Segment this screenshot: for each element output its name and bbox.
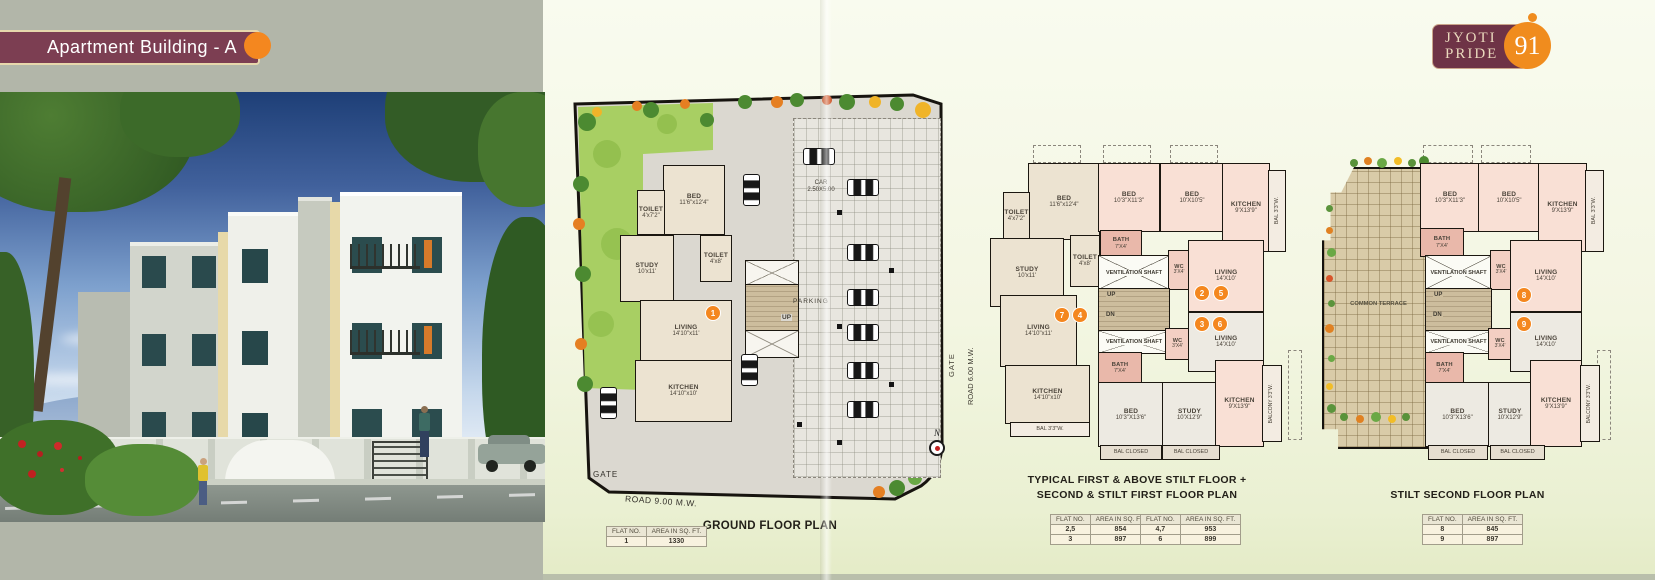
room-bed3: BED 10'X10'5" [1160, 163, 1224, 232]
area-cell: 953 [1180, 525, 1240, 535]
room-label: KITCHEN [1032, 388, 1062, 395]
column [889, 382, 894, 387]
room-label: BED [1502, 191, 1516, 198]
logo-number-circle: 91 [1504, 22, 1551, 69]
rose-bush [18, 440, 26, 448]
person-pants [420, 431, 429, 457]
balcony-box [1288, 350, 1302, 440]
window-box [1481, 145, 1531, 163]
door-accent [424, 326, 432, 354]
person [196, 458, 210, 510]
room-label: KITCHEN [1547, 201, 1577, 208]
north-letter: N [926, 428, 948, 438]
common-terrace: COMMON TERRACE [1322, 167, 1429, 449]
room-bal-closed: BAL CLOSED [1428, 445, 1488, 460]
plants-row [1340, 413, 1348, 421]
typical-plan-caption: TYPICAL FIRST & ABOVE STILT FLOOR + SECO… [1008, 473, 1266, 502]
ground-area-table: FLAT NO.AREA IN SQ. FT. 11330 [606, 526, 707, 547]
car-topview [600, 387, 617, 419]
gate-label: GATE [947, 317, 956, 377]
room-label: KITCHEN [668, 384, 698, 391]
room-label: KITCHEN [1224, 397, 1254, 404]
ventilation-shaft: VENTILATION SHAFT [1425, 255, 1492, 290]
car-topview [847, 289, 879, 306]
col-flat-no: FLAT NO. [1051, 515, 1091, 525]
building-recess [298, 197, 332, 471]
flat-no-cell: 4,7 [1141, 525, 1181, 535]
logo-word1: JYOTI [1445, 31, 1497, 47]
col-area: AREA IN SQ. FT. [1462, 515, 1522, 525]
room-label: LIVING [1215, 335, 1238, 342]
col-flat-no: FLAT NO. [1141, 515, 1181, 525]
ventilation-shaft: VENTILATION SHAFT [1098, 330, 1170, 354]
room-label: BED [1185, 191, 1199, 198]
room-dim: 10'3"X13'6" [1116, 415, 1147, 422]
room-label: LIVING [1215, 269, 1238, 276]
room-bed4: BED 10'3"X13'6" [1098, 382, 1164, 447]
room-wc1: WC 3'X4' [1490, 250, 1512, 290]
page-bottom-edge [543, 574, 1655, 580]
car-topview [847, 362, 879, 379]
room-bal2: BAL 3'3"W. [1010, 422, 1090, 437]
room-bath2: BATH 7'X4' [1098, 352, 1142, 384]
room-dim: 9'X13'9" [1545, 404, 1567, 411]
page-fold [820, 0, 832, 580]
room-label: BED [1057, 195, 1071, 202]
col-flat-no: FLAT NO. [1423, 515, 1463, 525]
room-label: KITCHEN [1541, 397, 1571, 404]
room-label: VENTILATION SHAFT [1104, 339, 1164, 345]
column [837, 210, 842, 215]
room-bath1: BATH 7'X4' [1100, 230, 1142, 257]
room-dim: 14'X10' [1536, 276, 1556, 283]
gate-label: GATE [593, 470, 618, 479]
compass-ring [929, 440, 945, 456]
caption-line1: TYPICAL FIRST & ABOVE STILT FLOOR + [1008, 473, 1266, 488]
room-dim: 7'X4' [1115, 244, 1127, 250]
brochure-page: Apartment Building - A [0, 0, 1655, 580]
room-dim: 7'X4' [1436, 243, 1448, 249]
column [837, 440, 842, 445]
building-pilaster [330, 202, 340, 464]
room-label: BAL CLOSED [1114, 449, 1148, 455]
room-dim: 3'X4' [1174, 270, 1185, 276]
column [837, 324, 842, 329]
ventilation-shaft: VENTILATION SHAFT [1425, 330, 1492, 354]
room-dim: 9'X13'9" [1235, 208, 1257, 215]
building-center-face [228, 212, 298, 471]
room-dim: 14'X10' [1216, 342, 1236, 349]
parked-car [478, 435, 545, 475]
flat-number-badge: 6 [1212, 316, 1228, 332]
room-dim: 10'3"X11'3" [1114, 198, 1144, 205]
room-label: TOILET [704, 252, 728, 259]
car-topview [847, 179, 879, 196]
door-accent [424, 240, 432, 268]
car-wheel [486, 460, 498, 472]
column [889, 268, 894, 273]
room-label: STUDY [1015, 266, 1038, 273]
car-wheel [524, 460, 536, 472]
room-bed4: BED 10'3"X13'6" [1425, 382, 1490, 447]
car-topview [847, 244, 879, 261]
person [418, 406, 432, 464]
banner-dot [244, 32, 271, 59]
dn-label: DN [1105, 312, 1116, 318]
flat-number-badge: 2 [1194, 285, 1210, 301]
plants-row [1350, 159, 1358, 167]
room-living1: LIVING 14'X10' [1188, 240, 1264, 312]
second-plan-caption: STILT SECOND FLOOR PLAN [1355, 489, 1580, 501]
room-bed2: BED 10'3"X11'3" [1098, 163, 1160, 232]
room-label: KITCHEN [1231, 201, 1261, 208]
room-wc1: WC 3'X4' [1168, 250, 1190, 290]
flat-no-cell: 3 [1051, 535, 1091, 545]
room-label: BAL CLOSED [1500, 449, 1534, 455]
room-dim: 4'x8' [1079, 261, 1091, 268]
flat-number-badge: 7 [1054, 307, 1070, 323]
building-left-face [130, 242, 220, 466]
room-label: BED [1122, 191, 1136, 198]
room-study2: STUDY 10'X12'9" [1162, 382, 1217, 447]
title-banner: Apartment Building - A [0, 30, 260, 65]
north-compass-icon: N [926, 428, 948, 466]
room-dim: 14'10"x11' [1025, 331, 1052, 338]
room-dim: 14'10"x10' [670, 391, 697, 398]
room-dim: 10'x11' [1018, 273, 1036, 280]
terrace-label: COMMON TERRACE [1336, 301, 1421, 307]
up-label: UP [1106, 292, 1116, 298]
room-study2: STUDY 10'X12'9" [1488, 382, 1532, 447]
area-cell: 897 [1462, 535, 1522, 545]
column [797, 422, 802, 427]
room-bal-closed: BAL CLOSED [1100, 445, 1162, 460]
room-toilet: TOILET 4'x7'2" [637, 190, 665, 235]
area-cell: 1330 [646, 537, 706, 547]
room-dim: 10'X10'5" [1179, 198, 1204, 205]
room-wc2: WC 3'X4' [1488, 328, 1512, 360]
room-dim: 14'10"x11' [673, 331, 700, 338]
room-kitchen1: KITCHEN 9'X13'9" [1222, 163, 1270, 252]
room-label: VENTILATION SHAFT [1428, 270, 1488, 276]
page-title: Apartment Building - A [21, 37, 237, 58]
car-topview [847, 401, 879, 418]
flat-number-badge: 8 [1516, 287, 1532, 303]
flat-no-cell: 9 [1423, 535, 1463, 545]
room-label: LIVING [1535, 269, 1558, 276]
room-label: STUDY [1498, 408, 1521, 415]
room-dim: 10'3"X13'6" [1442, 415, 1473, 422]
logo-number: 91 [1515, 31, 1541, 61]
room-bath2: BATH 7'X4' [1425, 352, 1464, 384]
room-label: BALCONY 3'3"W. [1269, 384, 1275, 423]
room-balcony: BALCONY 3'3"W. [1580, 365, 1600, 442]
person-head [421, 406, 428, 413]
up-label: UP [1433, 292, 1443, 298]
car-topview [847, 324, 879, 341]
dn-label: DN [1432, 312, 1443, 318]
plants-column [1326, 205, 1333, 212]
flat-number-badge: 4 [1072, 307, 1088, 323]
flat-number-badge: 5 [1213, 285, 1229, 301]
room-bal-closed: BAL CLOSED [1490, 445, 1545, 460]
room-label: STUDY [1178, 408, 1201, 415]
room-dim: 14'X10' [1536, 342, 1556, 349]
room-dim: 14'X10' [1216, 276, 1236, 283]
room-dim: 3'X4' [1496, 270, 1507, 276]
room-dim: 3'X4' [1172, 344, 1183, 350]
room-label: BED [1124, 408, 1138, 415]
room-dim: 10'X12'9" [1177, 415, 1202, 422]
flat-no-cell: 6 [1141, 535, 1181, 545]
room-label: TOILET [639, 206, 663, 213]
room-label: STUDY [635, 262, 658, 269]
room-dim: 4'x8' [710, 259, 722, 266]
person-pants [199, 481, 207, 505]
compass-core [935, 446, 940, 451]
room-wc2: WC 3'X4' [1165, 328, 1190, 360]
road-label: ROAD 6.00 M.W. [966, 310, 975, 405]
flat-no-cell: 8 [1423, 525, 1463, 535]
left-panel: Apartment Building - A [0, 0, 543, 580]
room-label: BALCONY 3'3"W. [1587, 384, 1593, 423]
room-bal1: BAL 3'3"W. [1268, 170, 1286, 252]
room-bal-closed: BAL CLOSED [1162, 445, 1220, 460]
flat-no-cell: 2,5 [1051, 525, 1091, 535]
room-label: LIVING [675, 324, 698, 331]
room-dim: 4'x7'2" [642, 213, 659, 220]
room-living2: LIVING 14'10"x11' [1000, 295, 1077, 367]
col-flat-no: FLAT NO. [607, 527, 647, 537]
room-label: LIVING [1027, 324, 1050, 331]
second-area-table: FLAT NO.AREA IN SQ. FT. 8845 9897 [1422, 514, 1523, 545]
room-label: VENTILATION SHAFT [1428, 339, 1488, 345]
person-head [200, 458, 207, 465]
ground-floor-plan: BED 11'6"x12'4" TOILET 4'x7'2" STUDY 10'… [545, 92, 945, 537]
balcony-rail [350, 330, 420, 355]
room-label: VENTILATION SHAFT [1104, 270, 1164, 276]
room-dim: 7'X4' [1114, 368, 1126, 374]
room-toilet1: TOILET 4'x7'2" [1003, 192, 1030, 240]
window-box [1423, 145, 1473, 163]
car-topview [743, 174, 760, 206]
logo-word2: PRIDE [1445, 47, 1498, 63]
person-shirt [419, 413, 430, 431]
room-bed1: BED 11'6"x12'4" [1028, 163, 1100, 240]
staircase [745, 284, 799, 332]
room-dim: 10'x11' [638, 269, 656, 276]
room-dim: 9'X13'9" [1229, 404, 1251, 411]
room-kitchen2: KITCHEN 14'10"x10' [1005, 365, 1090, 424]
room-dim: 9'X13'9" [1552, 208, 1574, 215]
typical-floor-plan: BED 11'6"x12'4" TOILET 4'x7'2" STUDY 10'… [988, 145, 1300, 465]
caption-line2: SECOND & STILT FIRST FLOOR PLAN [1008, 488, 1266, 503]
bush [85, 444, 200, 516]
room-kitchen1: KITCHEN 9'X13'9" [1538, 163, 1587, 252]
ventilation-shaft: VENTILATION SHAFT [1098, 255, 1170, 290]
area-cell: 845 [1462, 525, 1522, 535]
room-label: BAL 3'3"W. [1591, 197, 1597, 224]
room-label: TOILET [1004, 209, 1028, 216]
person-shirt [198, 465, 208, 481]
room-label: BED [687, 193, 701, 200]
room-toilet: TOILET 4'x8' [700, 235, 732, 282]
room-label: BAL CLOSED [1441, 449, 1475, 455]
logo-dot [1528, 13, 1537, 22]
building-pilaster [218, 232, 228, 467]
room-dim: 10'X10'5" [1496, 198, 1521, 205]
flat-number-badge: 9 [1516, 316, 1532, 332]
area-cell: 899 [1180, 535, 1240, 545]
window-box [1103, 145, 1151, 163]
building-rendering [0, 92, 545, 522]
col-area: AREA IN SQ. FT. [646, 527, 706, 537]
room-kitchen3: KITCHEN 9'X13'9" [1215, 360, 1264, 447]
room-balcony: BALCONY 3'3"W. [1262, 365, 1282, 442]
room-label: BAL CLOSED [1174, 449, 1208, 455]
room-dim: 14'10"x10' [1034, 395, 1061, 402]
room-label: BAL 3'3"W. [1274, 197, 1280, 224]
room-label: LIVING [1535, 335, 1558, 342]
room-dim: 11'6"x12'4" [1049, 202, 1078, 209]
room-dim: 3'X4' [1495, 344, 1506, 350]
car-topview [741, 354, 758, 386]
room-dim: 10'X12'9" [1497, 415, 1522, 422]
tree-foliage [478, 92, 545, 207]
room-label: BED [1443, 191, 1457, 198]
room-dim: 11'6"x12'4" [679, 200, 708, 207]
room-label: TOILET [1073, 254, 1097, 261]
room-toilet2: TOILET 4'x8' [1070, 235, 1100, 287]
flat-number-badge: 3 [1194, 316, 1210, 332]
room-bed2: BED 10'3"X11'3" [1420, 163, 1480, 232]
room-dim: 10'3"X11'3" [1435, 198, 1465, 205]
room-study: STUDY 10'x11' [620, 235, 674, 302]
window-box [1170, 145, 1218, 163]
room-dim: 7'X4' [1439, 368, 1451, 374]
flat-number-badge: 1 [705, 305, 721, 321]
room-bed3: BED 10'X10'5" [1478, 163, 1540, 232]
stilt-second-floor-plan: COMMON TERRACE BED 10'3"X11'3" BED 10'X1… [1318, 145, 1618, 465]
window-box [1033, 145, 1081, 163]
room-label: BAL 3'3"W. [1036, 426, 1063, 432]
room-bath1: BATH 7'X4' [1420, 228, 1464, 257]
room-dim: 4'x7'2" [1008, 216, 1025, 223]
room-kitchen: KITCHEN 14'10"x10' [635, 360, 732, 422]
room-bal1: BAL 3'3"W. [1585, 170, 1604, 252]
typical-area-table-2: FLAT NO.AREA IN SQ. FT. 4,7953 6899 [1140, 514, 1241, 545]
typical-area-table-1: FLAT NO.AREA IN SQ. FT. 2,5854 3897 [1050, 514, 1151, 545]
stair-landing [745, 260, 799, 286]
col-area: AREA IN SQ. FT. [1180, 515, 1240, 525]
balcony-rail [350, 244, 420, 269]
flat-no-cell: 1 [607, 537, 647, 547]
room-label: BED [1450, 408, 1464, 415]
room-kitchen3: KITCHEN 9'X13'9" [1530, 360, 1582, 447]
up-label: UP [781, 314, 792, 321]
room-bed: BED 11'6"x12'4" [663, 165, 725, 235]
